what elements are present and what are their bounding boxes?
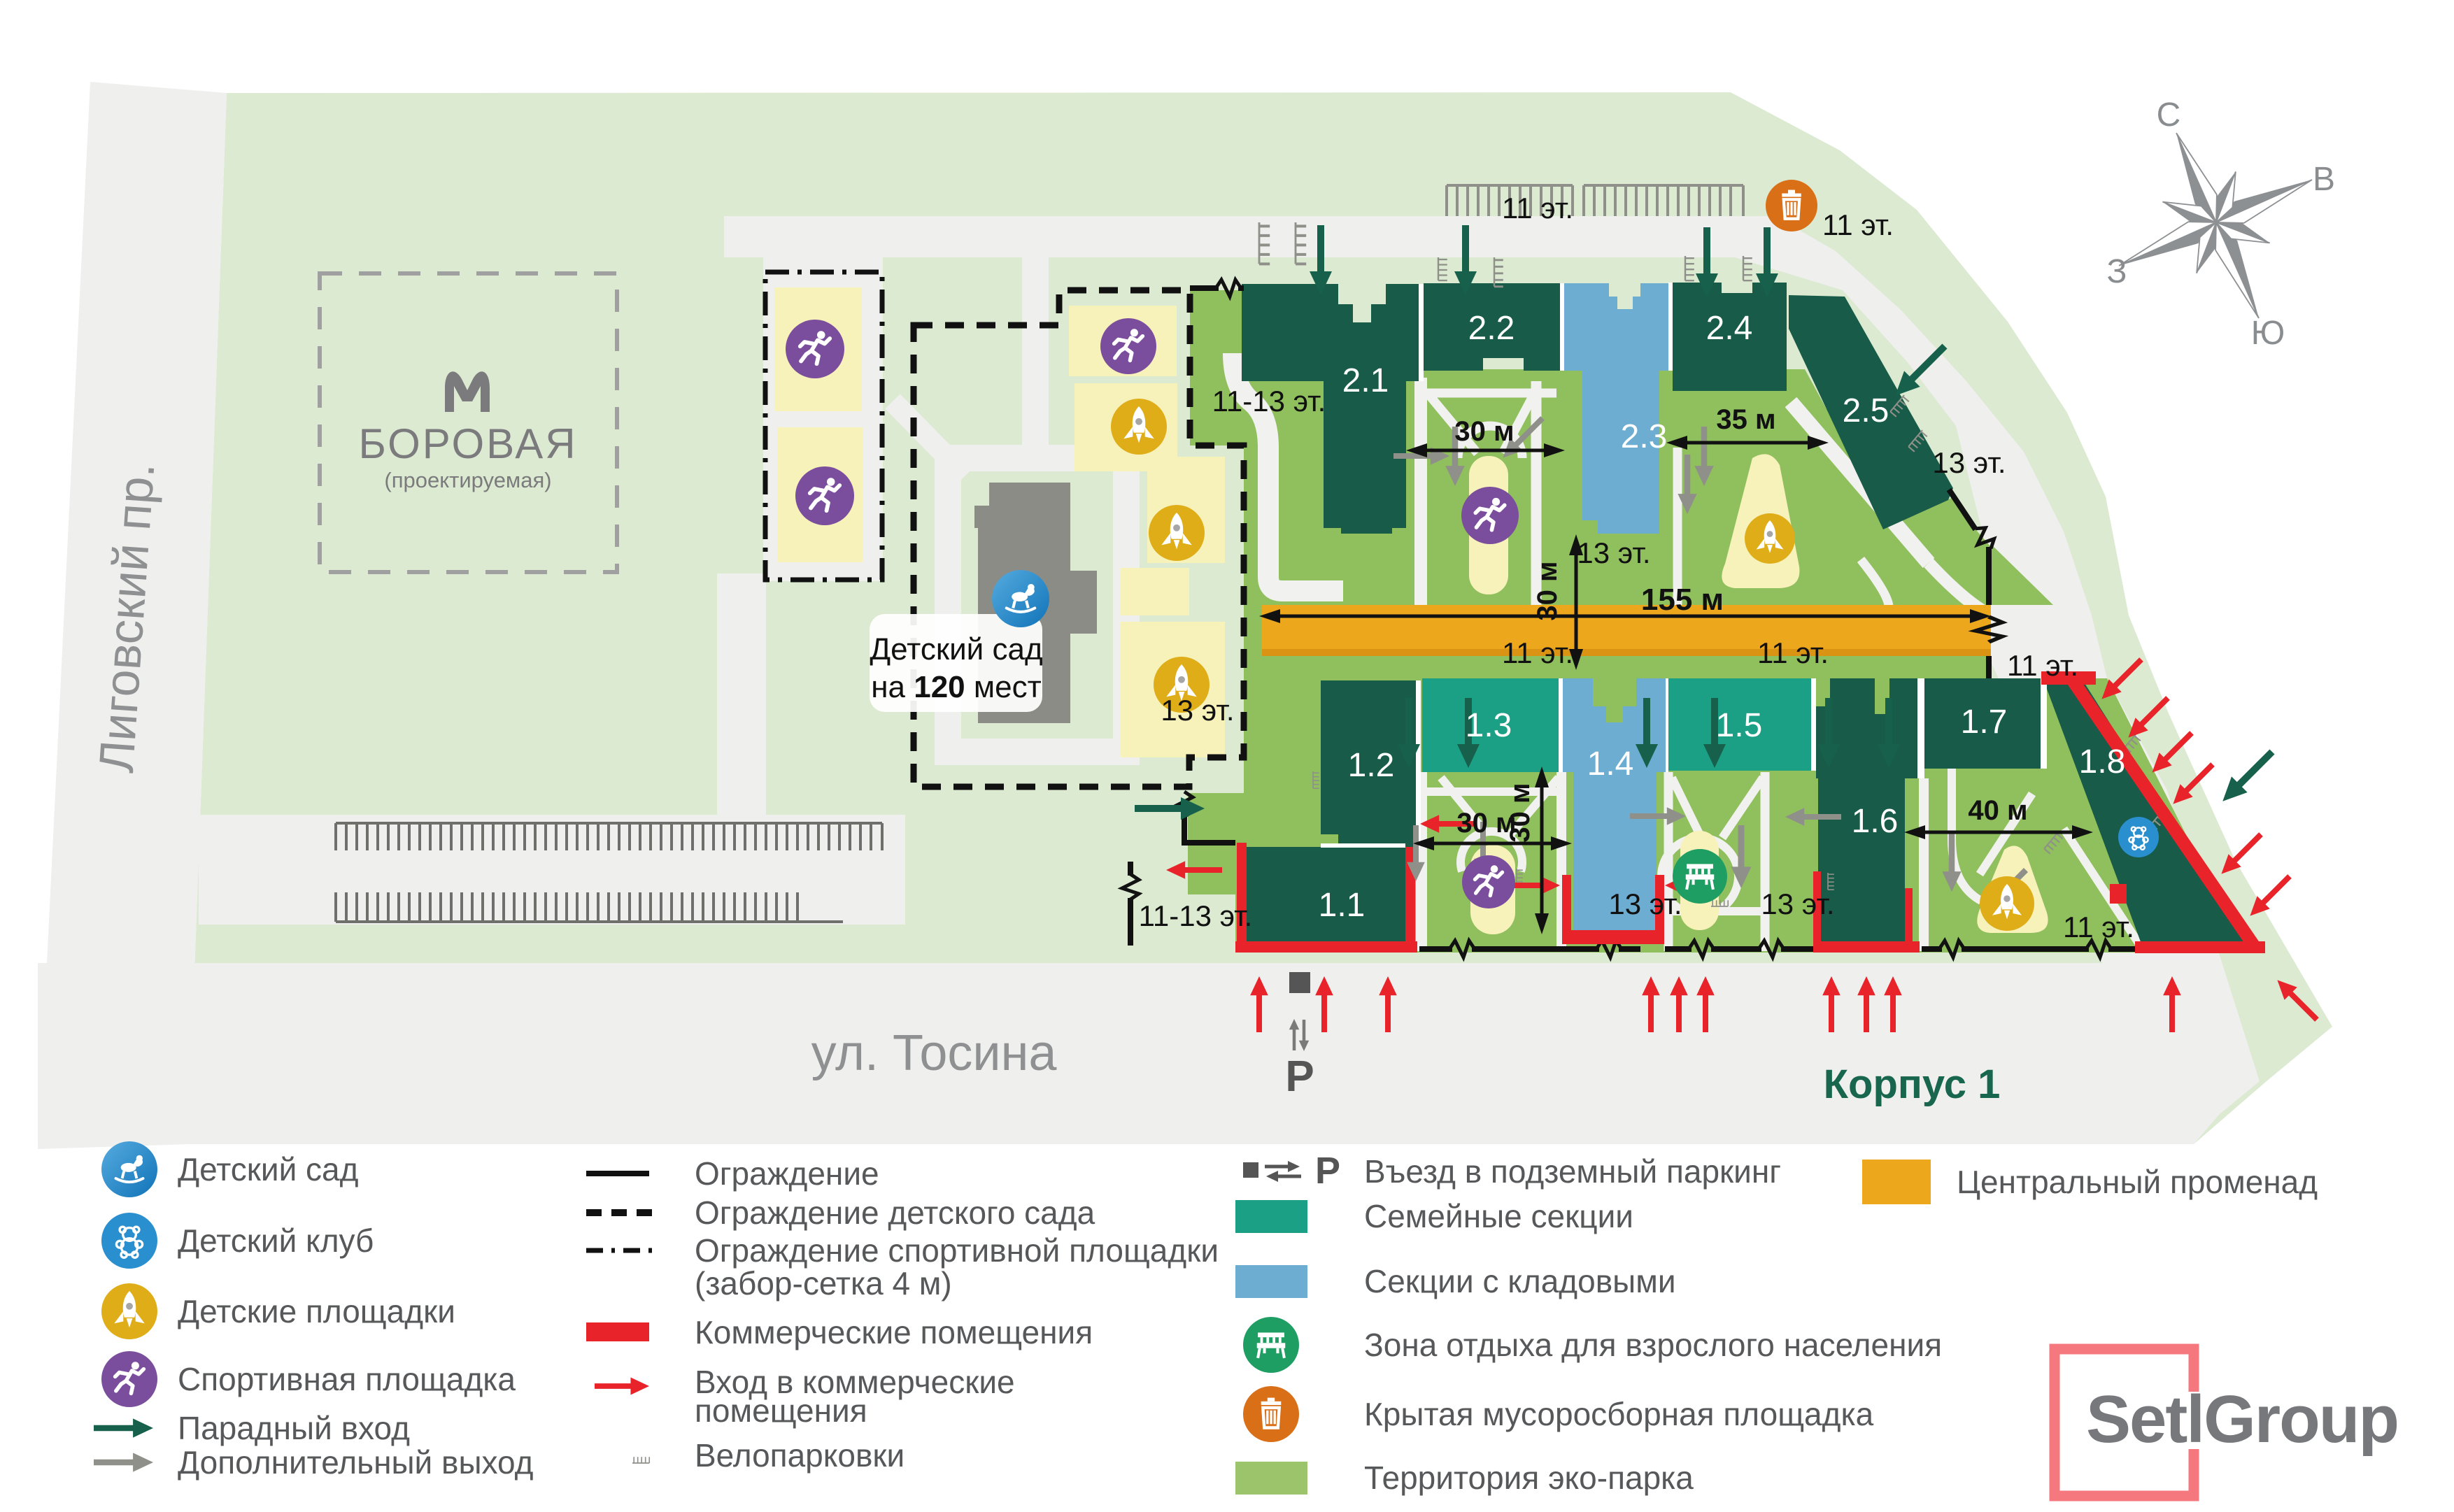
svg-text:SetlGroup: SetlGroup — [2086, 1382, 2398, 1457]
svg-text:40 м: 40 м — [1968, 795, 2027, 826]
svg-text:13 эт.: 13 эт. — [1577, 536, 1650, 569]
svg-text:30 м: 30 м — [1505, 783, 1535, 842]
svg-text:11-13 эт.: 11-13 эт. — [1212, 385, 1326, 418]
svg-text:11-13 эт.: 11-13 эт. — [1139, 899, 1253, 932]
svg-text:Зона отдыха для взрослого насе: Зона отдыха для взрослого населения — [1364, 1327, 1942, 1363]
svg-text:2.5: 2.5 — [1843, 392, 1889, 429]
svg-text:Велопарковки: Велопарковки — [695, 1437, 905, 1474]
svg-text:БОРОВАЯ: БОРОВАЯ — [358, 420, 577, 467]
svg-text:Детский клуб: Детский клуб — [178, 1222, 374, 1259]
svg-text:помещения: помещения — [695, 1392, 867, 1429]
svg-text:30 м: 30 м — [1532, 561, 1563, 620]
svg-text:Ю: Ю — [2251, 315, 2285, 352]
svg-text:1.3: 1.3 — [1466, 707, 1512, 744]
svg-text:2.4: 2.4 — [1706, 310, 1753, 347]
svg-text:З: З — [2107, 253, 2127, 290]
svg-text:Въезд в подземный паркинг: Въезд в подземный паркинг — [1364, 1153, 1781, 1190]
svg-text:1.8: 1.8 — [2079, 743, 2126, 780]
svg-text:1.1: 1.1 — [1319, 887, 1366, 924]
svg-text:(забор-сетка 4 м): (забор-сетка 4 м) — [695, 1265, 952, 1301]
svg-text:2.3: 2.3 — [1621, 418, 1668, 455]
svg-text:Секции с кладовыми: Секции с кладовыми — [1364, 1263, 1676, 1299]
svg-text:В: В — [2313, 161, 2335, 198]
svg-text:Ограждение: Ограждение — [695, 1155, 879, 1192]
svg-text:(проектируемая): (проектируемая) — [384, 468, 551, 492]
svg-text:13 эт.: 13 эт. — [1608, 887, 1682, 920]
svg-text:Р: Р — [1315, 1150, 1340, 1192]
svg-text:11 эт.: 11 эт. — [1757, 636, 1829, 669]
svg-text:Ограждение детского сада: Ограждение детского сада — [695, 1194, 1095, 1231]
svg-text:Спортивная площадка: Спортивная площадка — [178, 1361, 516, 1397]
svg-text:Коммерческие помещения: Коммерческие помещения — [695, 1314, 1093, 1350]
svg-text:11 эт.: 11 эт. — [2063, 911, 2134, 943]
svg-text:11 эт.: 11 эт. — [2007, 649, 2078, 682]
svg-text:2.1: 2.1 — [1342, 362, 1389, 399]
svg-text:Центральный променад: Центральный променад — [1957, 1164, 2318, 1200]
svg-text:Детский сад: Детский сад — [178, 1151, 359, 1188]
svg-text:11 эт.: 11 эт. — [1502, 636, 1573, 669]
svg-text:Дополнительный выход: Дополнительный выход — [178, 1444, 534, 1481]
svg-text:Семейные секции: Семейные секции — [1364, 1198, 1633, 1234]
svg-text:30 м: 30 м — [1454, 416, 1514, 447]
svg-text:на 120 мест: на 120 мест — [871, 670, 1042, 704]
svg-text:Корпус 1: Корпус 1 — [1824, 1062, 2001, 1107]
svg-text:Крытая мусоросборная площадка: Крытая мусоросборная площадка — [1364, 1396, 1874, 1432]
svg-text:13 эт.: 13 эт. — [1932, 446, 2006, 479]
svg-text:1.5: 1.5 — [1716, 707, 1763, 744]
svg-text:11 эт.: 11 эт. — [1502, 192, 1573, 224]
svg-text:155 м: 155 м — [1641, 583, 1724, 617]
svg-text:Парадный вход: Парадный вход — [178, 1410, 410, 1446]
svg-text:1.2: 1.2 — [1348, 747, 1395, 784]
svg-text:2.2: 2.2 — [1468, 310, 1515, 347]
svg-text:Ограждение спортивной площадки: Ограждение спортивной площадки — [695, 1232, 1219, 1269]
svg-text:35 м: 35 м — [1716, 404, 1775, 435]
svg-text:С: С — [2157, 97, 2181, 134]
svg-text:Детские площадки: Детские площадки — [178, 1293, 455, 1329]
svg-text:Детский сад: Детский сад — [870, 632, 1042, 666]
svg-text:11 эт.: 11 эт. — [1822, 208, 1894, 241]
svg-text:13 эт.: 13 эт. — [1761, 887, 1834, 920]
svg-text:1.4: 1.4 — [1587, 746, 1634, 783]
svg-text:Р: Р — [1285, 1053, 1314, 1101]
svg-text:13 эт.: 13 эт. — [1161, 694, 1234, 727]
svg-text:ул. Тосина: ул. Тосина — [811, 1025, 1058, 1081]
svg-text:Территория эко-парка: Территория эко-парка — [1364, 1460, 1694, 1496]
svg-text:1.7: 1.7 — [1961, 704, 2008, 741]
svg-text:1.6: 1.6 — [1852, 803, 1899, 840]
